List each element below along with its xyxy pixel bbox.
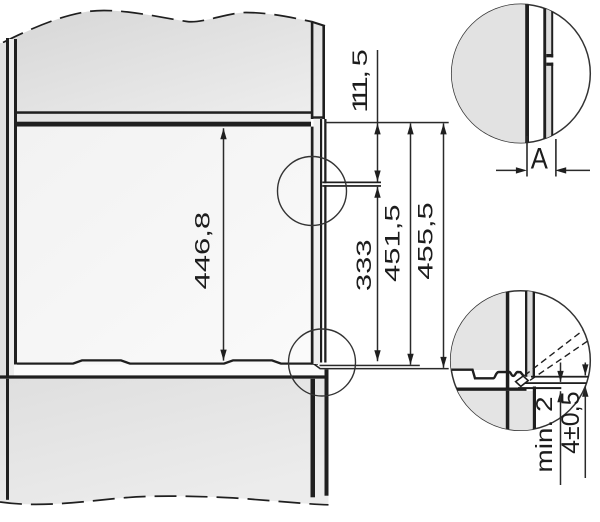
svg-text:A: A — [531, 142, 549, 175]
svg-text:4±0,5: 4±0,5 — [557, 392, 585, 454]
svg-text:min. 2: min. 2 — [532, 396, 557, 472]
svg-text:333: 333 — [351, 239, 375, 291]
svg-text:455,5: 455,5 — [413, 202, 437, 280]
svg-text:111,5: 111,5 — [348, 49, 372, 113]
svg-text:451,5: 451,5 — [380, 204, 404, 282]
svg-text:446,8: 446,8 — [190, 212, 214, 290]
